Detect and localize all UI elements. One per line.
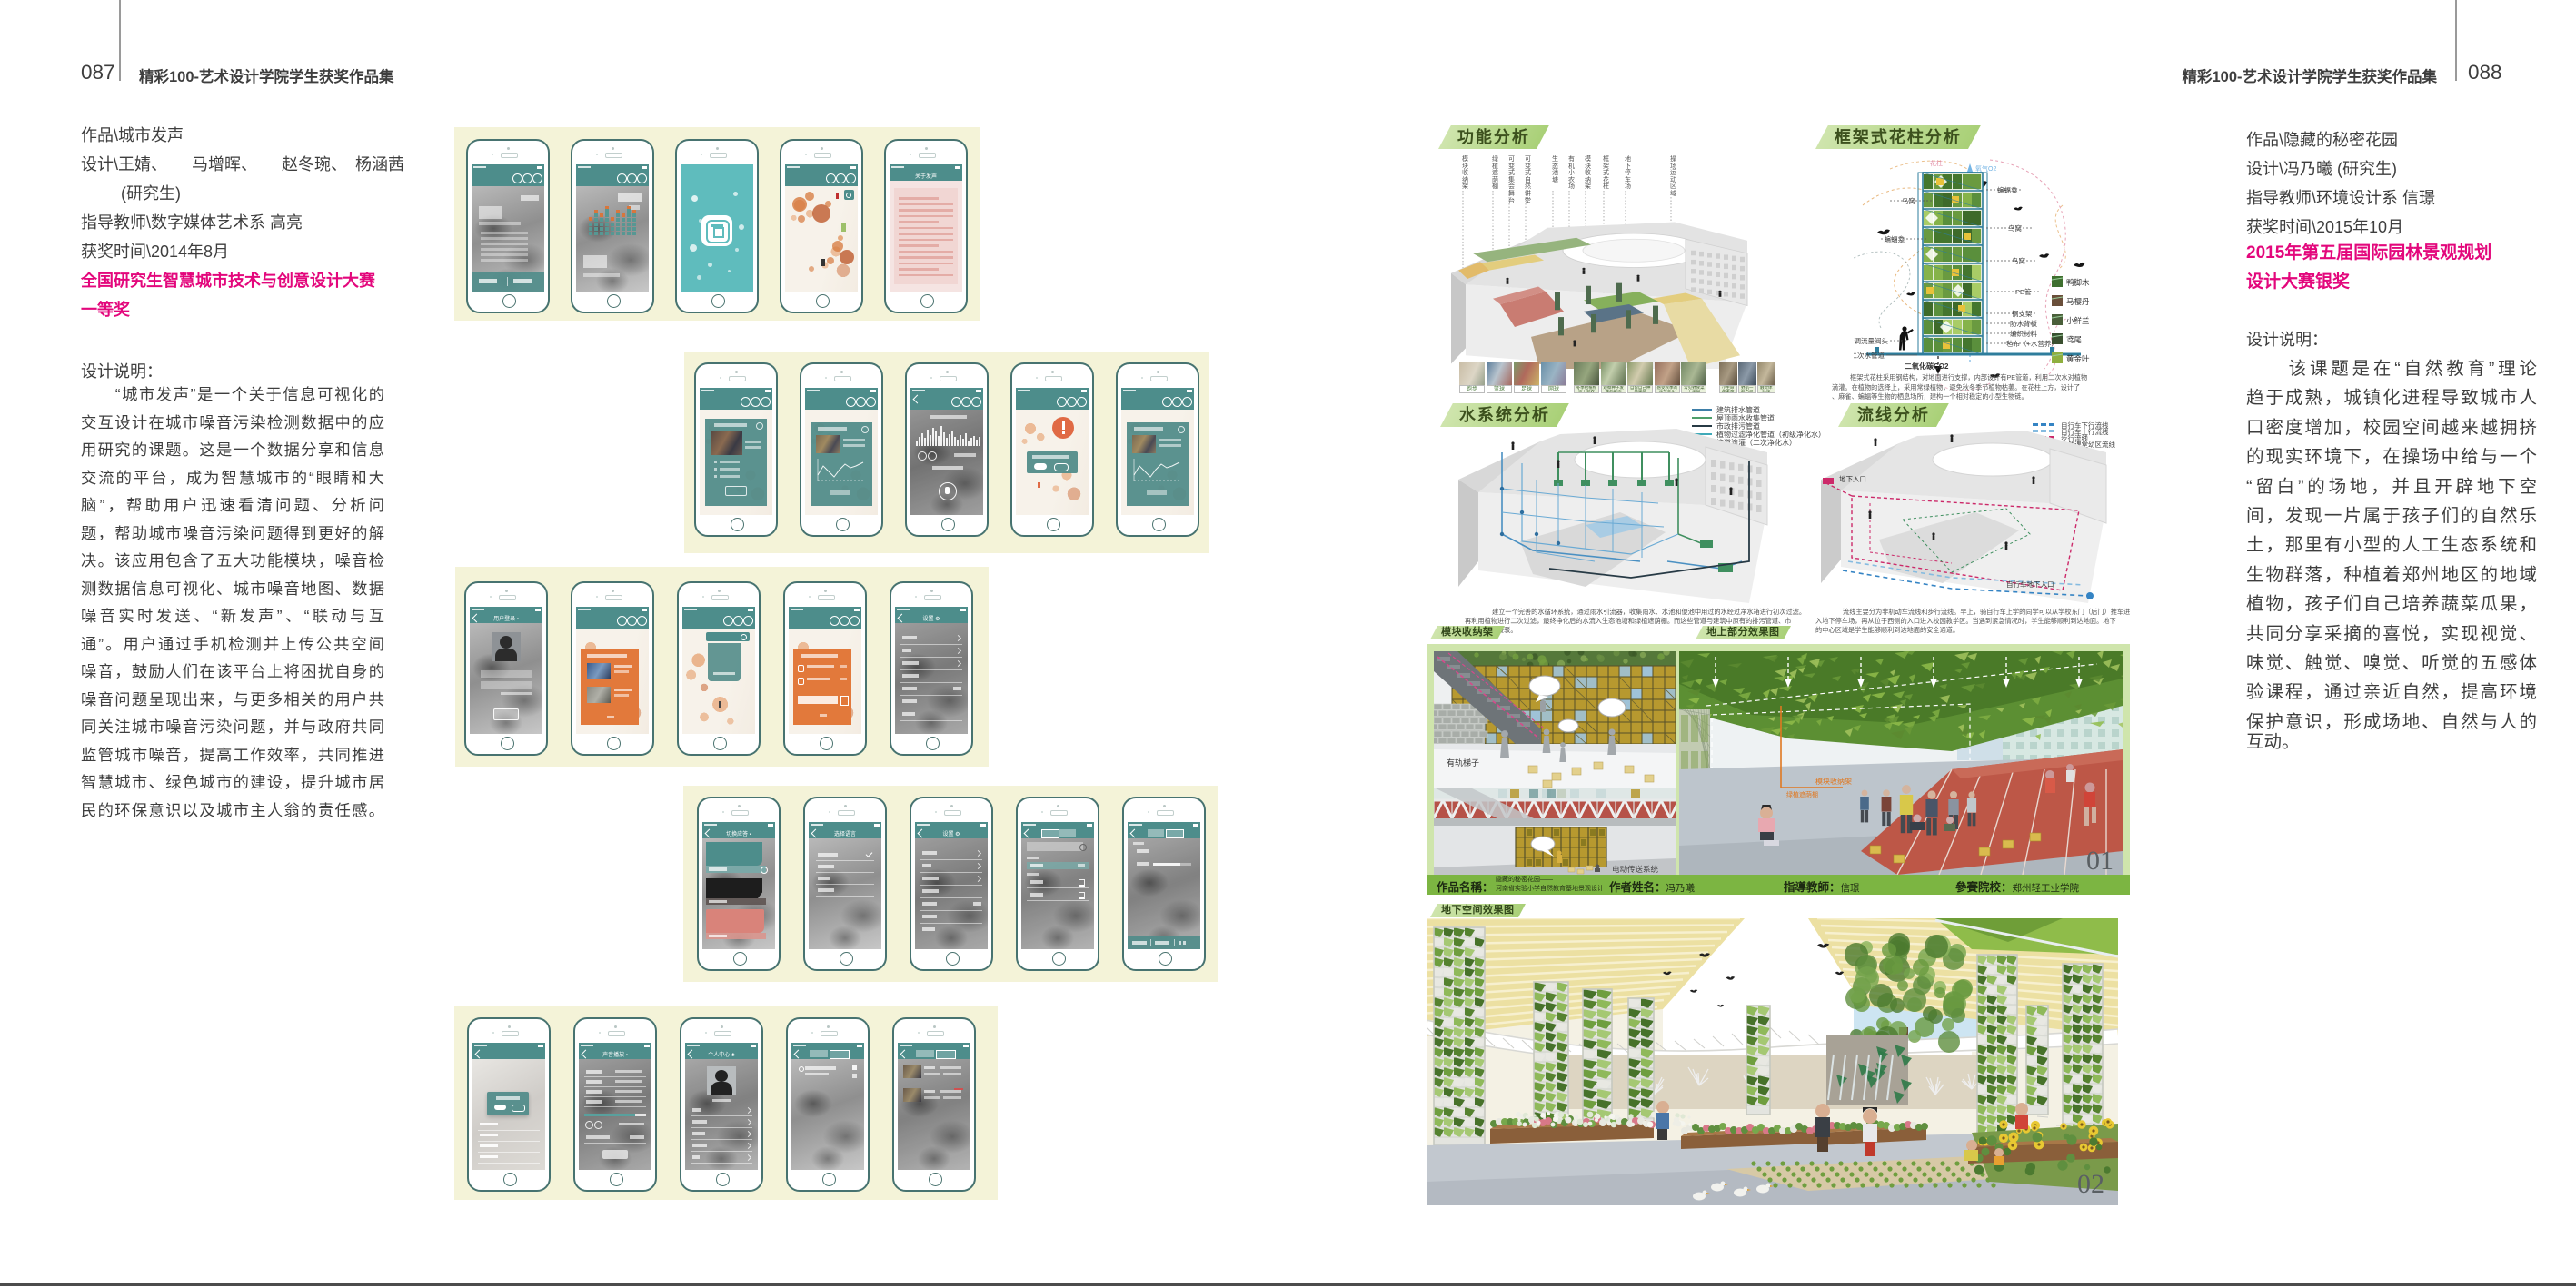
svg-text:电动传送系统: 电动传送系统	[1612, 865, 1659, 874]
svg-text:有轨梯子: 有轨梯子	[1447, 758, 1479, 768]
svg-text:氧气O2: 氧气O2	[1975, 164, 1996, 173]
svg-text:鸢尾: 鸢尾	[2066, 335, 2083, 344]
svg-text:自行车地下入口: 自行车地下入口	[2006, 580, 2054, 589]
svg-text:01: 01	[2086, 846, 2114, 875]
svg-text:02: 02	[2077, 1169, 2104, 1199]
svg-text:绿植遮荫棚: 绿植遮荫棚	[1786, 790, 1818, 798]
svg-text:模块收纳架: 模块收纳架	[1815, 777, 1852, 786]
svg-text:二氧化碳CO2: 二氧化碳CO2	[1905, 362, 1949, 371]
svg-text:可调流量阀头: 可调流量阀头	[1854, 336, 1888, 345]
svg-text:鸭脚木: 鸭脚木	[2066, 278, 2090, 287]
svg-text:小鲜兰: 小鲜兰	[2066, 316, 2090, 325]
svg-text:黄金叶: 黄金叶	[2066, 354, 2090, 363]
svg-text:毡布（+水营养）: 毡布（+水营养）	[2006, 339, 2058, 348]
svg-text:花柱: 花柱	[1930, 159, 1943, 167]
svg-text:地下入口: 地下入口	[1839, 474, 1866, 483]
svg-text:蝙蝠龛: 蝙蝠龛	[1997, 185, 2018, 194]
svg-text:马樱丹: 马樱丹	[2066, 297, 2090, 306]
svg-text:蝙蝠龛: 蝙蝠龛	[1885, 234, 1905, 243]
svg-text:二次水管道: 二次水管道	[1854, 351, 1885, 360]
svg-text:钢支架: 钢支架	[2012, 309, 2033, 318]
